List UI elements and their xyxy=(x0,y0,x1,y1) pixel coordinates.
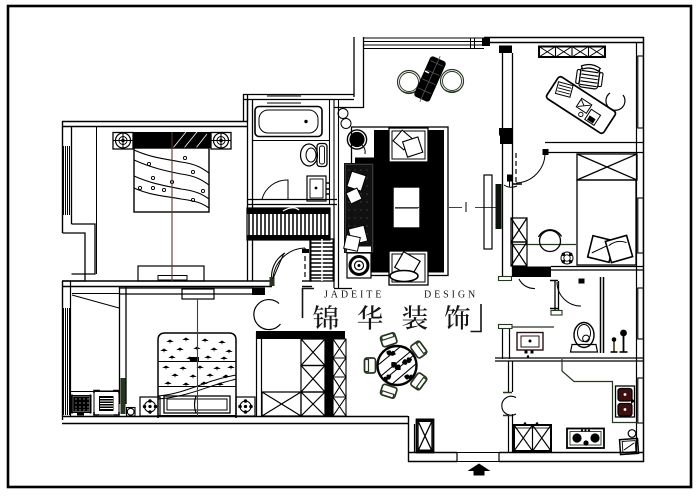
svg-text:DESIGN: DESIGN xyxy=(424,290,478,301)
svg-text:JADEITE: JADEITE xyxy=(324,290,384,301)
